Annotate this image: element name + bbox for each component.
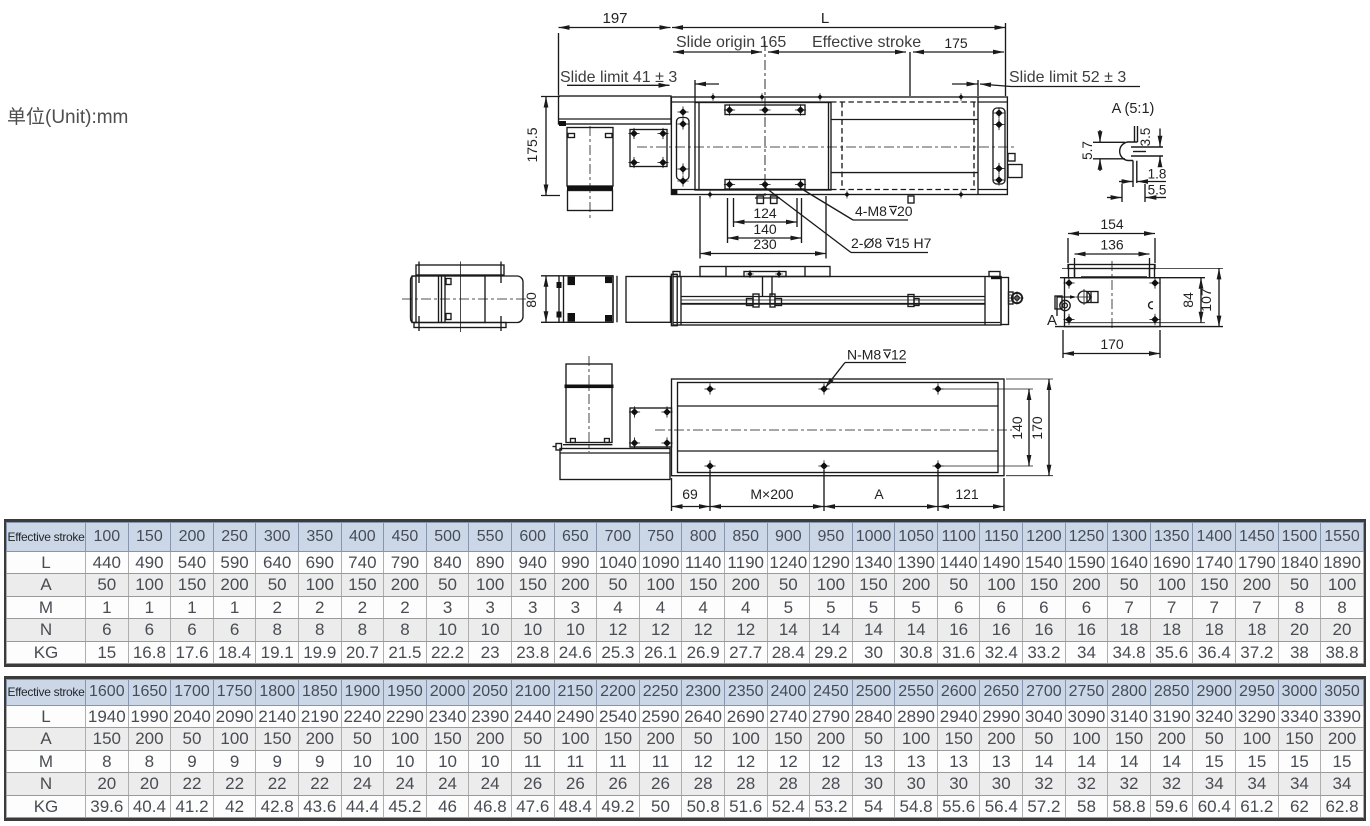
- svg-text:197: 197: [602, 10, 627, 27]
- svg-text:4-M8: 4-M8: [855, 203, 887, 219]
- svg-text:175.5: 175.5: [524, 127, 540, 162]
- svg-text:230: 230: [753, 236, 777, 252]
- svg-text:12: 12: [891, 347, 907, 363]
- svg-text:170: 170: [1100, 336, 1124, 352]
- svg-text:5.5: 5.5: [1148, 183, 1167, 198]
- svg-text:5.7: 5.7: [1080, 141, 1095, 160]
- svg-text:20: 20: [897, 203, 913, 219]
- svg-text:A (5:1): A (5:1): [1112, 101, 1155, 117]
- svg-text:1.8: 1.8: [1148, 167, 1167, 182]
- svg-text:L: L: [821, 10, 829, 27]
- svg-text:121: 121: [955, 486, 979, 502]
- svg-text:170: 170: [1029, 416, 1045, 440]
- svg-text:A: A: [1047, 312, 1057, 329]
- svg-text:M×200: M×200: [750, 486, 793, 502]
- svg-text:Slide limit 52 ± 3: Slide limit 52 ± 3: [1009, 69, 1126, 86]
- svg-text:69: 69: [682, 486, 698, 502]
- svg-text:124: 124: [753, 205, 777, 221]
- svg-text:N-M8: N-M8: [847, 347, 881, 363]
- svg-text:3.5: 3.5: [1138, 128, 1153, 147]
- svg-text:107: 107: [1198, 288, 1214, 312]
- svg-text:A: A: [874, 486, 884, 502]
- svg-text:Slide limit 41 ± 3: Slide limit 41 ± 3: [560, 69, 677, 86]
- svg-text:136: 136: [1100, 237, 1124, 253]
- svg-text:15 H7: 15 H7: [894, 235, 932, 251]
- svg-text:154: 154: [1100, 216, 1124, 232]
- svg-text:Effective stroke: Effective stroke: [812, 34, 921, 51]
- svg-text:Slide origin 165: Slide origin 165: [676, 34, 786, 51]
- svg-text:2-Ø8: 2-Ø8: [851, 235, 882, 251]
- svg-text:84: 84: [1180, 292, 1196, 308]
- svg-text:140: 140: [753, 221, 777, 237]
- svg-text:175: 175: [944, 35, 968, 51]
- svg-text:140: 140: [1009, 416, 1025, 440]
- svg-text:80: 80: [523, 292, 539, 308]
